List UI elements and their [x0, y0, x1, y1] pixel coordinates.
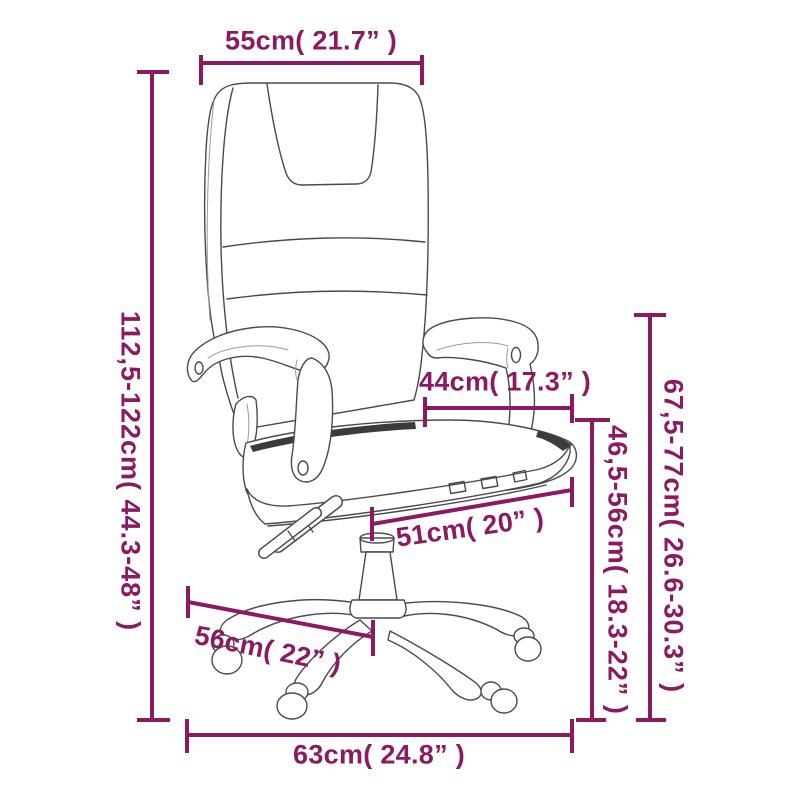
caster-front-left-wheel — [277, 693, 307, 719]
dim-label-top-width: 55cm( 21.7” ) — [225, 28, 397, 55]
base-leg-right — [398, 602, 529, 636]
caster-right-wheel — [515, 637, 541, 661]
base-leg-front-right — [388, 631, 481, 700]
product-dimension-diagram: 55cm( 21.7” ) 112,5-122cm( 44.3-48” ) 67… — [0, 0, 800, 800]
gas-lift-column — [359, 552, 397, 600]
dim-label-seat-height: 46,5-56cm( 18.3-22” ) — [604, 425, 631, 715]
base-hub — [350, 600, 406, 618]
dim-line-top-width — [201, 55, 422, 85]
dim-label-overall-depth: 63cm( 24.8” ) — [293, 742, 465, 769]
chair-sketch — [187, 83, 576, 719]
caster-front-right-wheel — [491, 689, 517, 713]
dim-label-armrest-height: 67,5-77cm( 26.6-30.3” ) — [660, 379, 687, 693]
gas-lift-collar — [360, 538, 394, 552]
dim-label-backrest-width: 44cm( 17.3” ) — [419, 369, 591, 396]
dim-label-overall-height: 112,5-122cm( 44.3-48” ) — [117, 311, 144, 631]
